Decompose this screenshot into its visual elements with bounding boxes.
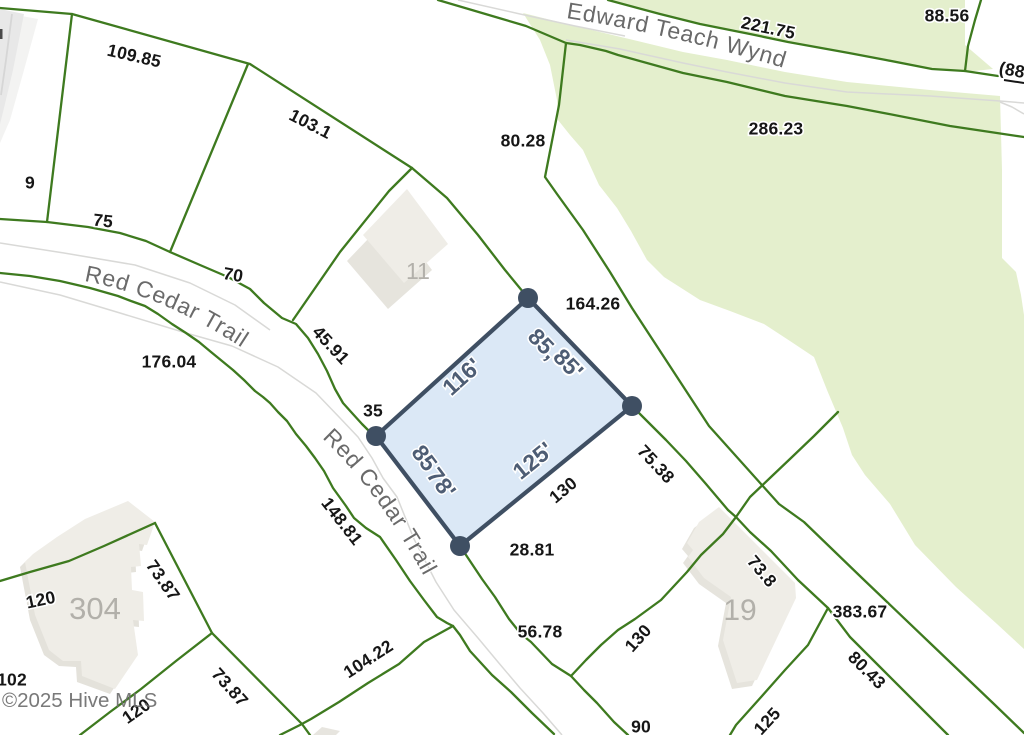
svg-text:©2025 Hive MLS: ©2025 Hive MLS [2,689,157,712]
svg-text:164.26: 164.26 [566,294,621,314]
svg-text:102: 102 [0,670,27,690]
svg-text:75: 75 [92,210,114,232]
svg-text:28.81: 28.81 [510,540,555,560]
svg-text:176.04: 176.04 [142,352,197,372]
svg-text:70: 70 [222,263,245,286]
svg-text:90: 90 [631,717,651,735]
svg-text:56.78: 56.78 [518,622,563,642]
svg-text:19: 19 [723,594,756,627]
svg-text:80.28: 80.28 [501,131,546,151]
svg-text:304: 304 [69,591,121,626]
svg-text:9: 9 [25,173,35,193]
svg-text:88.56: 88.56 [925,6,970,26]
svg-text:286.23: 286.23 [749,119,804,139]
svg-text:383.67: 383.67 [833,602,888,622]
svg-text:35: 35 [363,401,383,421]
svg-text:11: 11 [406,258,430,284]
